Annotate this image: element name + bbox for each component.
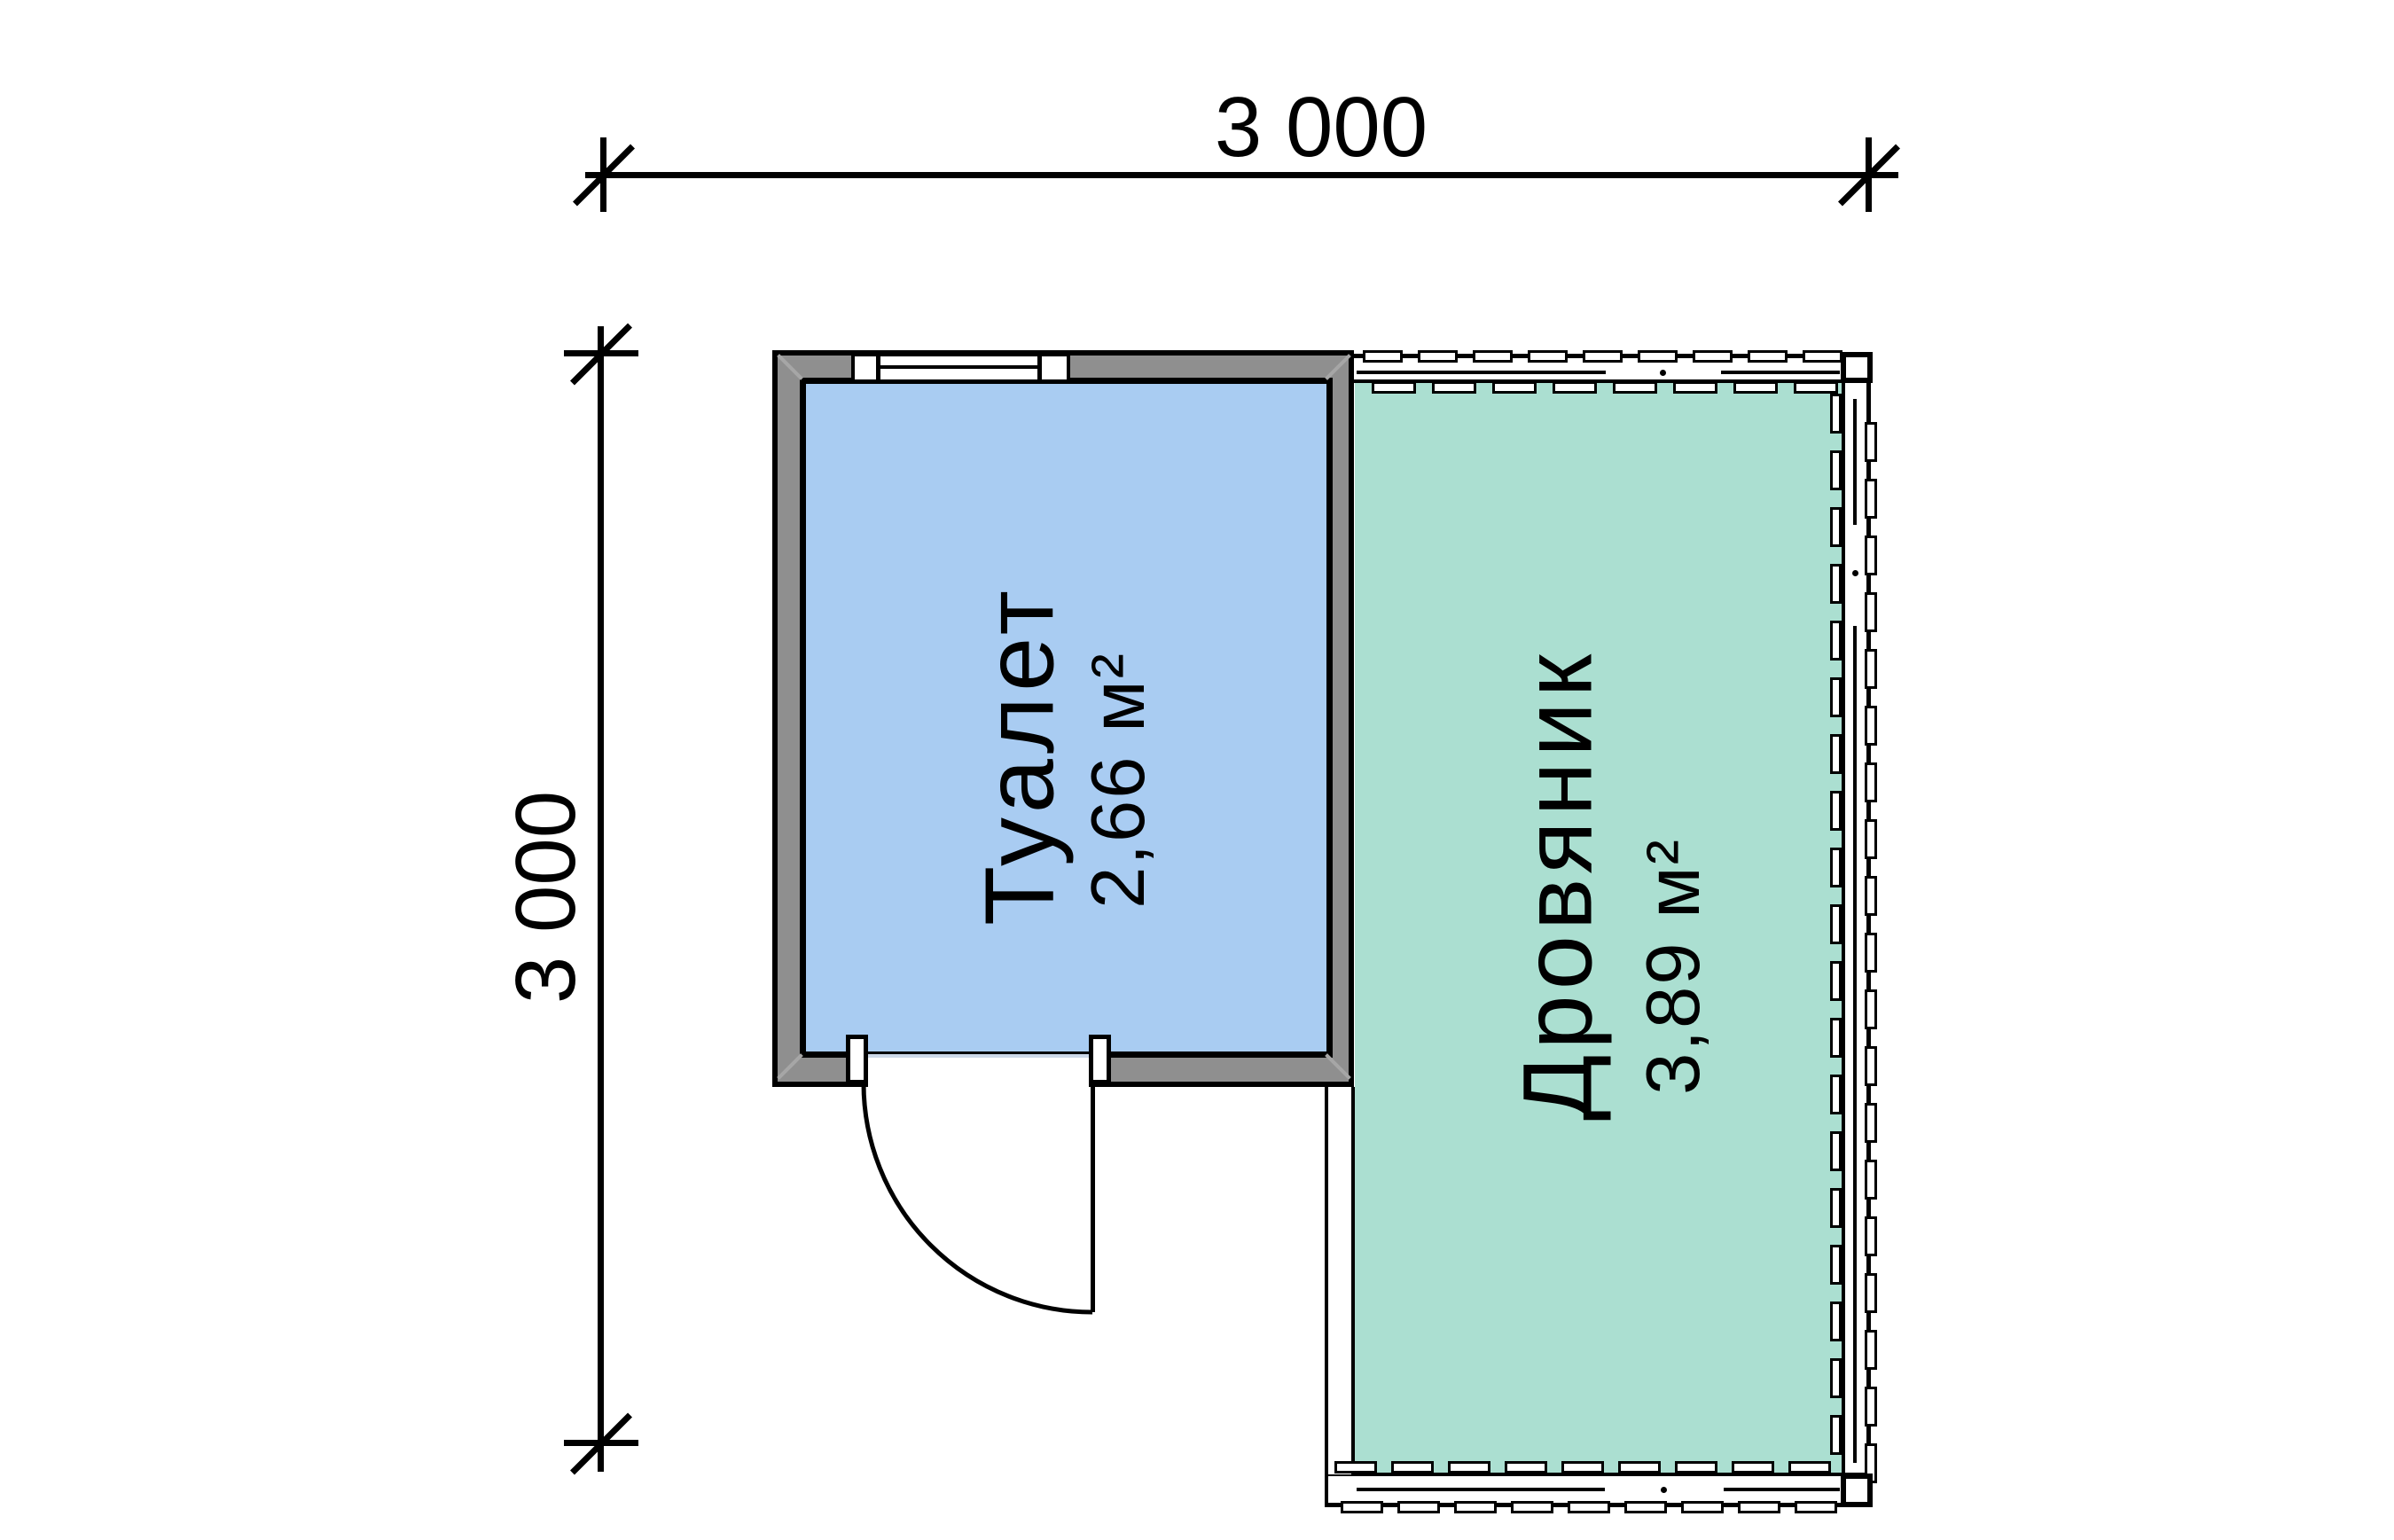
stud-dash <box>1865 422 1877 462</box>
top-wall-stud-row-inner <box>1372 381 1838 394</box>
stud-dash <box>1830 1188 1842 1228</box>
stud-dash <box>1448 1461 1490 1474</box>
top-wall-stud-row-outer <box>1363 350 1842 363</box>
top-wall-beam-line-a <box>1357 371 1606 374</box>
stud-dash <box>1865 989 1877 1029</box>
stud-dash <box>1830 904 1842 944</box>
stud-dash <box>1865 479 1877 519</box>
stud-dash <box>1865 1103 1877 1143</box>
bottom-wall-beam-line-b <box>1724 1488 1840 1491</box>
right-wall-beam-line-b <box>1853 626 1857 1463</box>
stud-dash <box>1681 1501 1724 1513</box>
bottom-wall-stud-row-inner <box>1334 1461 1831 1474</box>
stud-dash <box>1795 1501 1837 1513</box>
window-sash-line <box>880 365 1037 369</box>
stud-dash <box>1432 381 1476 394</box>
top-wall-beam-line-b <box>1721 371 1840 374</box>
stud-dash <box>1830 1075 1842 1114</box>
right-wall-beam-dot <box>1852 570 1858 576</box>
corner-post-bottom-right <box>1841 1474 1873 1507</box>
stud-dash <box>1865 933 1877 973</box>
corner-post-top-right <box>1841 352 1873 383</box>
left-dimension-line <box>598 326 604 1472</box>
stud-dash <box>1865 1046 1877 1086</box>
stud-dash <box>1865 1330 1877 1370</box>
stud-dash <box>1830 791 1842 831</box>
stud-dash <box>1528 350 1568 363</box>
stud-dash <box>1675 1461 1717 1474</box>
top-dimension-label: 3 000 <box>1099 85 1543 170</box>
stud-dash <box>1492 381 1537 394</box>
stud-dash <box>1865 1273 1877 1313</box>
stud-dash <box>1865 1387 1877 1427</box>
stud-dash <box>1418 350 1458 363</box>
bottom-wall-beam-dot <box>1661 1487 1667 1493</box>
stud-dash <box>1738 1501 1780 1513</box>
stud-dash <box>1830 1245 1842 1285</box>
stud-dash <box>1830 1018 1842 1058</box>
stud-dash <box>1568 1501 1610 1513</box>
stud-dash <box>1334 1461 1377 1474</box>
window-divider-right <box>1037 355 1042 379</box>
stud-dash <box>1830 734 1842 774</box>
stud-dash <box>1830 848 1842 887</box>
stud-dash <box>1830 961 1842 1001</box>
stud-dash <box>1830 564 1842 604</box>
room-area-toilet: 2,66 м² <box>1076 652 1162 909</box>
door-swing-arc <box>860 1080 1099 1319</box>
stud-dash <box>1583 350 1623 363</box>
stud-dash <box>1363 350 1403 363</box>
woodshed-wall-left-partition <box>1325 1087 1355 1474</box>
stud-dash <box>1397 1501 1440 1513</box>
stud-dash <box>1505 1461 1547 1474</box>
left-dimension-label: 3 000 <box>504 791 589 1004</box>
stud-dash <box>1865 535 1877 575</box>
bottom-wall-stud-row-outer <box>1341 1501 1837 1513</box>
right-wall-stud-col-outer <box>1865 422 1877 1483</box>
stud-dash <box>1865 706 1877 746</box>
stud-dash <box>1454 1501 1497 1513</box>
stud-dash <box>1865 819 1877 859</box>
stud-dash <box>1473 350 1513 363</box>
stud-dash <box>1803 350 1842 363</box>
stud-dash <box>1830 1302 1842 1341</box>
stud-dash <box>1830 1415 1842 1455</box>
room-area-woodshed: 3,89 м² <box>1631 838 1717 1095</box>
stud-dash <box>1865 876 1877 916</box>
stud-dash <box>1693 350 1733 363</box>
stud-dash <box>1733 381 1778 394</box>
room-label-woodshed: Дровяник <box>1502 649 1615 1121</box>
stud-dash <box>1561 1461 1604 1474</box>
stud-dash <box>1865 762 1877 802</box>
right-wall-beam-line-a <box>1853 399 1857 525</box>
bottom-wall-beam-line-a <box>1357 1488 1605 1491</box>
stud-dash <box>1830 394 1842 434</box>
stud-dash <box>1372 381 1416 394</box>
stud-dash <box>1511 1501 1553 1513</box>
stud-dash <box>1830 677 1842 717</box>
stud-dash <box>1748 350 1788 363</box>
stud-dash <box>1865 1160 1877 1200</box>
stud-dash <box>1732 1461 1774 1474</box>
stud-dash <box>1788 1461 1831 1474</box>
stud-dash <box>1553 381 1597 394</box>
stud-dash <box>1865 1216 1877 1256</box>
stud-dash <box>1830 621 1842 661</box>
stud-dash <box>1794 381 1838 394</box>
stud-dash <box>1613 381 1657 394</box>
door-jamb-right <box>1089 1035 1111 1084</box>
stud-dash <box>1830 1131 1842 1171</box>
stud-dash <box>1830 1358 1842 1398</box>
right-wall-stud-col-inner <box>1830 394 1842 1455</box>
stud-dash <box>1830 450 1842 490</box>
stud-dash <box>1865 592 1877 632</box>
room-label-toilet: Туалет <box>964 585 1076 926</box>
door-jamb-left <box>846 1035 868 1084</box>
stud-dash <box>1638 350 1678 363</box>
stud-dash <box>1673 381 1717 394</box>
floor-plan: 3 000 3 000 <box>0 0 2394 1540</box>
stud-dash <box>1830 507 1842 547</box>
stud-dash <box>1624 1501 1667 1513</box>
stud-dash <box>1618 1461 1661 1474</box>
top-wall-beam-dot <box>1660 370 1666 376</box>
stud-dash <box>1341 1501 1383 1513</box>
stud-dash <box>1865 649 1877 689</box>
stud-dash <box>1391 1461 1434 1474</box>
